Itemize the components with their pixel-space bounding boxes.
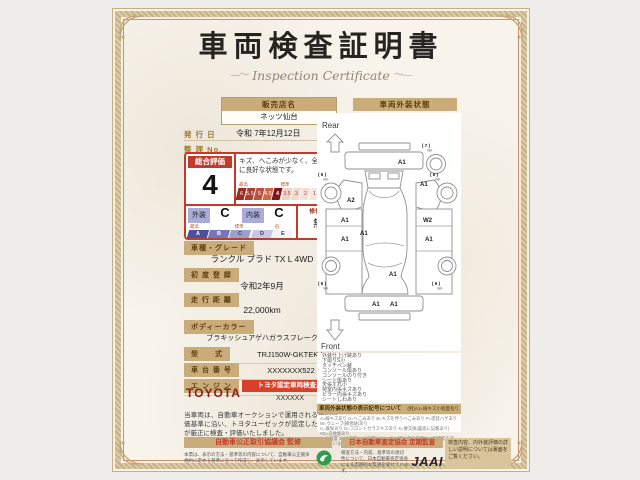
exterior-condition-panel: 車両外装状態: [317, 98, 461, 432]
damage-marker: A1: [420, 182, 428, 188]
disclaimer-text: 当車両は、自動車オークションで運用される車両評価基準に沿い、トヨタユーゼックが認…: [184, 411, 338, 439]
tire-depth-label: ( 6 ): [430, 172, 439, 177]
page-subtitle-row: —～ Inspection Certificate ～—: [113, 66, 529, 83]
tire-depth-unit: mm: [323, 178, 329, 182]
damage-marker: A1: [360, 231, 368, 237]
flourish-left: —～: [230, 70, 248, 81]
damage-marker: W2: [423, 218, 433, 224]
footer-right-sub: 検査方法・内容、基準等の適切性について、日本自動車査定協会による定期的な監査を受…: [341, 450, 443, 474]
symbol-legend-lines: A=線キズあり U=へこみあり B=キズを伴うへこみあり P=塗装ハゲあり W=…: [317, 415, 461, 432]
interior-grade: C: [265, 205, 293, 220]
page-subtitle: Inspection Certificate: [252, 68, 390, 83]
corner-ornament: [117, 437, 147, 467]
footer-left-group: 自動車公正取引協議会 監修 本票は、表示の方法・基準等の内容について、自動車公正…: [184, 437, 332, 466]
letter-scale-segment: A: [187, 230, 210, 238]
tire-depth-unit: mm: [435, 178, 441, 182]
tire-depth-label: ( 7 ): [422, 143, 431, 148]
symbol-legend-line: C=腐食あり O=フロントガラスキズあり X=要交換(裏面に記載あり) XX=交…: [320, 426, 458, 436]
flourish-right: ～—: [394, 70, 412, 81]
damage-marker: A1: [372, 302, 380, 308]
front-arrow-icon: [327, 320, 343, 340]
tire-depth-unit: mm: [427, 149, 433, 153]
rear-arrow-icon: [327, 134, 343, 152]
symbol-legend-title: 車両外装状態の表示記号について: [319, 404, 401, 414]
jaai-logo: JAAI: [411, 454, 443, 469]
exterior-grade: C: [211, 205, 239, 220]
damage-marker: A1: [425, 237, 433, 243]
tire-depth-unit: mm: [323, 287, 329, 291]
front-label: Front: [321, 342, 340, 350]
symbol-legend-line: A=線キズあり U=へこみあり B=キズを伴うへこみあり P=塗装ハゲあり W=…: [320, 416, 458, 426]
letter-scale-segment: E: [272, 230, 295, 238]
fair-trade-mark-icon: [316, 450, 332, 466]
letter-rating-scale: 最高 標準 低 ABCDE: [188, 224, 294, 237]
chassis-no-label: 車 台 番 号: [184, 363, 239, 377]
exterior-condition-header: 車両外装状態: [353, 98, 457, 111]
footer-right-group: 日本自動車査定協会 定期監査 検査方法・内容、基準等の適切性について、日本自動車…: [341, 437, 443, 474]
overall-rating-value: 4: [186, 168, 234, 204]
interior-label: 内装: [242, 208, 264, 223]
exterior-notes-list: 外装仕上げ跡あり下廻りS小タッチペン跡コンソール傷ありコンソールのり付きシート傷…: [317, 353, 461, 403]
damage-marker: A2: [347, 198, 355, 204]
exterior-label: 外装: [188, 208, 210, 223]
overall-rating-label: 総合評価: [188, 156, 232, 168]
certificate: 車両検査証明書 —～ Inspection Certificate ～— 販売店…: [112, 8, 530, 472]
exterior-note-item: シートしわあり: [322, 398, 456, 403]
car-damage-diagram: Rear Front ( 7 )mmA1( 6 )mm( 6 )mmA2A1A1…: [318, 114, 460, 350]
symbol-legend-header: 車両外装状態の表示記号について (例)A1=線キズ小程度有り: [317, 404, 461, 414]
damage-marker: A1: [389, 272, 397, 278]
damage-marker: A1: [341, 237, 349, 243]
jaai-audit-bar: 日本自動車査定協会 定期監査: [341, 437, 443, 448]
tire-depth-label: ( 6 ): [318, 172, 327, 177]
overall-rating-cell: 総合評価 4: [186, 154, 236, 204]
tire-depth-label: ( 6 ): [432, 281, 441, 286]
damage-marker: A1: [341, 218, 349, 224]
tire-depth-label: ( 6 ): [318, 281, 327, 286]
damage-marker: A1: [390, 302, 398, 308]
fair-trade-text: 本票は、表示の方法・基準等の内容について、自動車公正競争規約に定める基準に沿って…: [184, 452, 313, 464]
letter-scale-segments: ABCDE: [188, 230, 294, 238]
model-code-label: 型 式: [184, 347, 230, 361]
car-outline: [321, 143, 457, 320]
footer-left-sub: 本票は、表示の方法・基準等の内容について、自動車公正競争規約に定める基準に沿って…: [184, 450, 332, 466]
damage-marker: A1: [398, 160, 406, 166]
tire-depth-unit: mm: [437, 287, 443, 291]
reverse-side-note: 検査内容、内外装評価の詳しい説明については裏面をご覧ください。: [445, 438, 511, 469]
issue-date-label: 発 行 日: [184, 129, 216, 140]
symbol-legend-example: (例)A1=線キズ小程度有り: [407, 404, 459, 414]
letter-scale-segment: C: [229, 230, 252, 238]
car-diagram-box: Rear Front ( 7 )mmA1( 6 )mm( 6 )mmA2A1A1…: [317, 113, 461, 351]
page-title: 車両検査証明書: [113, 23, 529, 65]
fair-trade-council-bar: 自動車公正取引協議会 監修: [184, 437, 332, 448]
page-background: 車両検査証明書 —～ Inspection Certificate ～— 販売店…: [0, 0, 640, 480]
toyota-logo: TOYOTA: [186, 386, 241, 400]
jaai-audit-text: 検査方法・内容、基準等の適切性について、日本自動車査定協会による定期的な監査を受…: [341, 450, 408, 474]
letter-scale-segment: D: [250, 230, 273, 238]
rear-label: Rear: [322, 121, 340, 130]
body-color-label: ボディーカラー: [184, 320, 254, 334]
issue-date-value: 令和 7年12月12日: [236, 128, 300, 139]
